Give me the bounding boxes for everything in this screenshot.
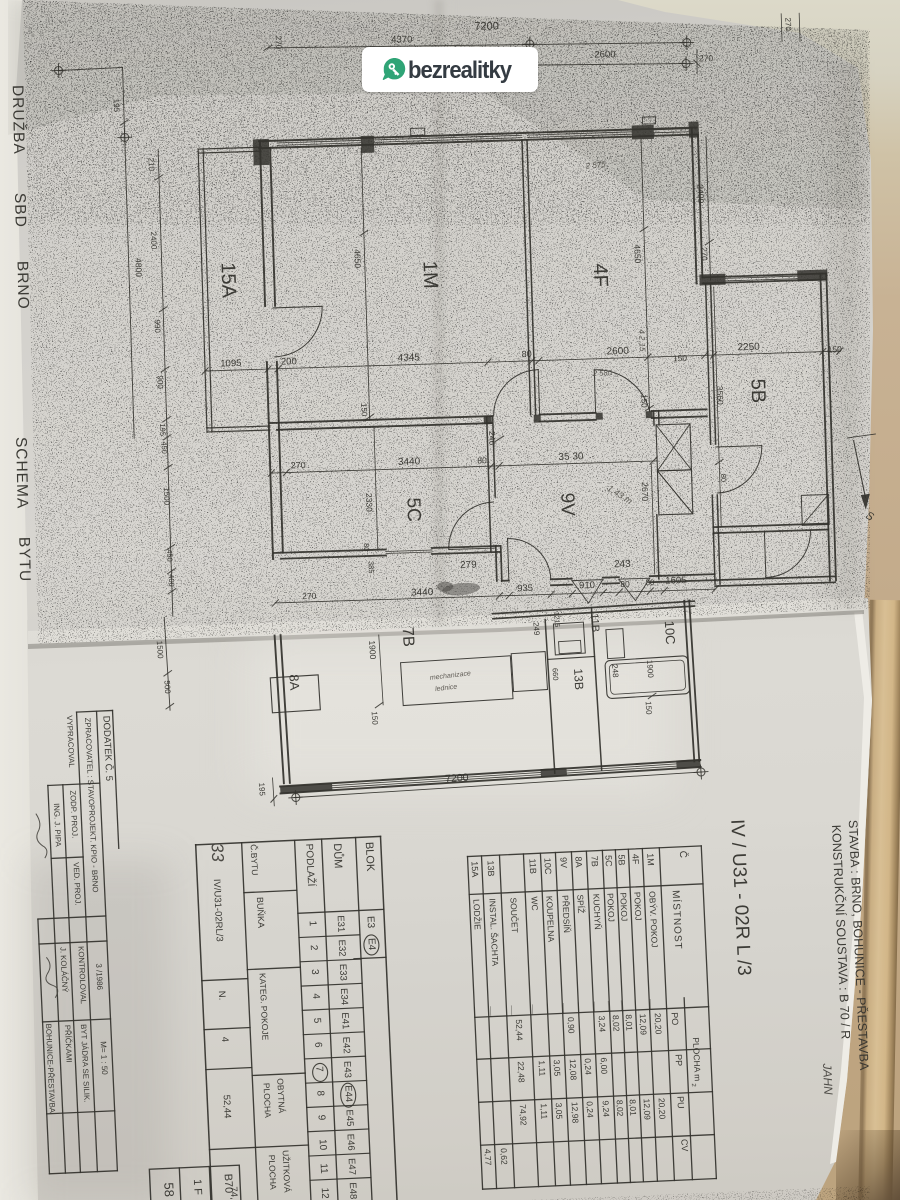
svg-text:MÍSTNOST: MÍSTNOST <box>670 890 686 950</box>
svg-text:2330: 2330 <box>364 493 375 512</box>
svg-text:52,44: 52,44 <box>221 1094 233 1118</box>
svg-text:1M: 1M <box>419 261 442 289</box>
svg-text:385: 385 <box>366 561 375 574</box>
svg-text:4: 4 <box>310 993 321 999</box>
svg-text:IV/U31-02RL/3: IV/U31-02RL/3 <box>211 879 225 942</box>
svg-text:270: 270 <box>302 591 317 601</box>
svg-text:11: 11 <box>318 1163 329 1174</box>
svg-text:SPÍŽ: SPÍŽ <box>575 894 586 913</box>
svg-text:20,20: 20,20 <box>657 1098 668 1120</box>
svg-text:195: 195 <box>112 99 121 113</box>
svg-text:1,43 m: 1,43 m <box>606 483 635 507</box>
svg-text:210: 210 <box>146 157 155 171</box>
svg-text:13B: 13B <box>485 860 496 876</box>
svg-text:E42: E42 <box>340 1036 352 1053</box>
svg-text:E41: E41 <box>339 1012 351 1029</box>
svg-text:N.: N. <box>216 991 227 1001</box>
svg-text:KONTROLOVAL: KONTROLOVAL <box>76 946 88 1005</box>
svg-text:PŘEDSÍŇ: PŘEDSÍŇ <box>560 895 572 933</box>
svg-text:150: 150 <box>639 394 648 408</box>
svg-text:12,98: 12,98 <box>570 1102 581 1124</box>
svg-text:E33: E33 <box>337 964 349 981</box>
svg-text:35 30: 35 30 <box>558 451 584 463</box>
svg-text:OBÝV. POKOJ: OBÝV. POKOJ <box>647 891 660 948</box>
svg-text:80: 80 <box>719 474 728 483</box>
svg-text:E48: E48 <box>347 1182 359 1199</box>
svg-text:3440: 3440 <box>411 587 434 599</box>
svg-text:270: 270 <box>274 36 283 50</box>
svg-text:5: 5 <box>311 1017 322 1023</box>
svg-text:1500: 1500 <box>155 640 165 659</box>
svg-text:2: 2 <box>690 1083 696 1087</box>
svg-text:PLOCHA m: PLOCHA m <box>691 1037 703 1081</box>
svg-text:400: 400 <box>167 574 176 587</box>
svg-text:PO: PO <box>670 1012 681 1025</box>
svg-text:0,24: 0,24 <box>583 1058 594 1075</box>
svg-text:450: 450 <box>160 441 169 454</box>
svg-text:BYT JÁDRA SE SILIK.: BYT JÁDRA SE SILIK. <box>79 1024 92 1103</box>
svg-text:OBYTNÁ: OBYTNÁ <box>275 1078 287 1114</box>
svg-text:2400: 2400 <box>695 184 706 203</box>
svg-text:UŽITKOVÁ: UŽITKOVÁ <box>281 1150 293 1193</box>
svg-text:8: 8 <box>314 1090 325 1096</box>
svg-text:PU: PU <box>675 1096 686 1109</box>
svg-text:4 2,15: 4 2,15 <box>637 329 647 352</box>
svg-text:150: 150 <box>644 701 654 715</box>
svg-text:243: 243 <box>614 559 631 571</box>
svg-text:ZODP. PROJ.: ZODP. PROJ. <box>68 790 79 838</box>
svg-text:2: 2 <box>308 945 319 951</box>
svg-text:E31: E31 <box>335 915 347 932</box>
svg-text:6: 6 <box>312 1042 323 1048</box>
svg-text:IV / U31 - 02R L /3: IV / U31 - 02R L /3 <box>726 819 754 976</box>
svg-text:M= 1 : 50: M= 1 : 50 <box>99 1041 110 1075</box>
svg-text:2600: 2600 <box>606 346 629 358</box>
svg-text:1,11: 1,11 <box>537 1060 548 1077</box>
svg-text:KOUPELNA: KOUPELNA <box>544 896 556 943</box>
svg-text:0,62: 0,62 <box>499 1148 510 1165</box>
svg-text:PLOCHA: PLOCHA <box>262 1083 274 1119</box>
svg-text:4345: 4345 <box>398 352 421 364</box>
svg-text:4650: 4650 <box>632 244 643 263</box>
svg-text:1900: 1900 <box>645 660 655 679</box>
svg-text:15A: 15A <box>469 861 480 877</box>
svg-text:248: 248 <box>610 664 620 678</box>
svg-text:5C: 5C <box>402 497 424 522</box>
svg-text:4,77: 4,77 <box>483 1149 494 1166</box>
svg-text:279: 279 <box>460 560 477 572</box>
svg-text:80: 80 <box>362 543 371 552</box>
svg-text:270: 270 <box>700 247 709 261</box>
svg-text:PŘÍČKAMI: PŘÍČKAMI <box>63 1025 74 1063</box>
svg-text:DŮM: DŮM <box>331 843 345 869</box>
svg-text:52,44: 52,44 <box>514 1019 525 1041</box>
svg-text:15A: 15A <box>217 262 240 299</box>
svg-text:POKOJ: POKOJ <box>605 893 616 922</box>
svg-text:0,90: 0,90 <box>566 1017 577 1034</box>
svg-text:2250: 2250 <box>737 342 760 354</box>
svg-text:1095: 1095 <box>220 358 241 370</box>
svg-text:E34: E34 <box>338 988 350 1005</box>
svg-text:450: 450 <box>165 549 174 562</box>
svg-text:4800: 4800 <box>133 258 144 277</box>
svg-text:0,24: 0,24 <box>585 1101 596 1118</box>
svg-text:E44: E44 <box>342 1085 354 1102</box>
svg-text:9V: 9V <box>558 857 568 868</box>
svg-text:5B: 5B <box>616 854 626 865</box>
svg-text:9V: 9V <box>556 492 578 516</box>
svg-text:J. KOLÁČNÝ: J. KOLÁČNÝ <box>58 947 69 994</box>
svg-text:10: 10 <box>317 1139 329 1151</box>
svg-text:12,09: 12,09 <box>642 1098 653 1120</box>
svg-text:3440: 3440 <box>398 456 421 468</box>
svg-text:1900: 1900 <box>367 640 378 660</box>
svg-text:7: 7 <box>313 1066 324 1072</box>
svg-text:150: 150 <box>827 344 842 354</box>
svg-text:PLOCHA: PLOCHA <box>267 1154 279 1190</box>
svg-text:22,48: 22,48 <box>516 1061 527 1083</box>
svg-text:7200: 7200 <box>445 772 469 785</box>
svg-text:lednice: lednice <box>435 684 458 694</box>
svg-text:80: 80 <box>620 579 630 589</box>
svg-text:4650: 4650 <box>352 249 363 268</box>
svg-text:1605: 1605 <box>665 575 686 587</box>
svg-text:S: S <box>863 510 876 524</box>
svg-text:270: 270 <box>783 17 792 31</box>
svg-text:PP: PP <box>673 1054 684 1066</box>
svg-text:195: 195 <box>158 423 167 436</box>
svg-text:5C: 5C <box>603 855 614 867</box>
svg-text:WC: WC <box>529 896 540 911</box>
svg-text:270: 270 <box>699 53 714 63</box>
svg-text:SCHEMA: SCHEMA <box>12 437 31 510</box>
svg-text:270: 270 <box>290 460 305 470</box>
svg-text:12,09: 12,09 <box>638 1013 649 1035</box>
svg-text:VED. PROJ.: VED. PROJ. <box>72 862 83 906</box>
svg-text:POKOJ: POKOJ <box>618 892 629 921</box>
svg-text:10C: 10C <box>662 620 678 645</box>
svg-text:B70: B70 <box>222 1173 235 1193</box>
svg-text:80: 80 <box>645 578 655 587</box>
svg-text:3: 3 <box>309 969 320 975</box>
svg-text:6,00: 6,00 <box>599 1057 610 1074</box>
svg-text:3,05: 3,05 <box>554 1102 565 1119</box>
svg-text:BUŇKA: BUŇKA <box>255 897 266 928</box>
svg-text:8A: 8A <box>286 674 302 691</box>
svg-text:12,08: 12,08 <box>568 1059 579 1081</box>
svg-text:500: 500 <box>162 680 172 694</box>
svg-text:33: 33 <box>208 842 228 862</box>
svg-text:4: 4 <box>219 1036 230 1042</box>
svg-text:BRNO: BRNO <box>13 261 31 310</box>
svg-text:DRUŽBA: DRUŽBA <box>9 85 27 155</box>
svg-text:990: 990 <box>153 319 162 333</box>
svg-text:2670: 2670 <box>640 482 651 501</box>
svg-text:Č.BYTU: Č.BYTU <box>249 844 260 876</box>
svg-text:4370: 4370 <box>391 34 412 45</box>
svg-text:8A: 8A <box>573 856 583 867</box>
svg-text:150: 150 <box>673 353 688 363</box>
svg-text:246: 246 <box>487 431 497 446</box>
svg-text:4F: 4F <box>589 263 612 287</box>
svg-text:80: 80 <box>477 455 487 465</box>
svg-text:E45: E45 <box>343 1109 355 1126</box>
svg-text:74,92: 74,92 <box>518 1104 529 1126</box>
svg-text:2 575: 2 575 <box>584 160 606 171</box>
svg-text:1M: 1M <box>645 853 656 866</box>
svg-text:150: 150 <box>359 403 368 417</box>
svg-text:2400: 2400 <box>149 231 159 250</box>
svg-text:ING. J. PIPA: ING. J. PIPA <box>52 803 63 848</box>
svg-text:KATEG. POKOJE: KATEG. POKOJE <box>258 973 271 1041</box>
svg-text:200: 200 <box>281 356 297 367</box>
svg-text:11B: 11B <box>588 613 601 632</box>
svg-text:INSTAL. ŠACHTA: INSTAL. ŠACHTA <box>487 898 500 966</box>
svg-text:9: 9 <box>315 1115 326 1121</box>
svg-text:9,24: 9,24 <box>601 1100 612 1117</box>
svg-text:910: 910 <box>579 580 595 591</box>
svg-text:POKOJ: POKOJ <box>632 892 643 921</box>
svg-text:BLOK: BLOK <box>363 842 376 873</box>
svg-text:BYTU: BYTU <box>15 537 33 583</box>
svg-text:7B: 7B <box>399 627 417 648</box>
svg-text:JAHN: JAHN <box>820 1062 835 1095</box>
svg-text:900: 900 <box>155 375 164 389</box>
svg-text:7B: 7B <box>589 856 599 867</box>
svg-text:58: 58 <box>161 1182 177 1197</box>
svg-text:4F: 4F <box>630 854 640 865</box>
svg-text:DODATEK Č. 5: DODATEK Č. 5 <box>100 716 114 782</box>
svg-text:7200: 7200 <box>474 20 499 32</box>
svg-text:195: 195 <box>257 782 267 796</box>
svg-text:KUCHYŇ: KUCHYŇ <box>591 893 603 929</box>
svg-text:1215: 1215 <box>552 612 560 628</box>
svg-text:80: 80 <box>522 349 532 359</box>
svg-text:8,02: 8,02 <box>615 1100 626 1117</box>
svg-text:10C: 10C <box>542 858 553 875</box>
svg-text:1 F: 1 F <box>191 1179 204 1196</box>
svg-text:20,20: 20,20 <box>653 1013 664 1035</box>
svg-text:11B: 11B <box>527 858 538 874</box>
svg-text:8,01: 8,01 <box>628 1099 639 1116</box>
svg-text:E47: E47 <box>346 1158 358 1175</box>
svg-text:mechanizace: mechanizace <box>430 670 472 682</box>
svg-text:Č: Č <box>677 850 690 858</box>
svg-text:8,01: 8,01 <box>624 1014 635 1031</box>
svg-text:SOUČET: SOUČET <box>508 897 520 933</box>
svg-text:3 /1986: 3 /1986 <box>94 963 104 991</box>
svg-text:3,24: 3,24 <box>597 1015 608 1032</box>
svg-text:E3: E3 <box>365 916 377 929</box>
svg-text:150: 150 <box>370 711 380 725</box>
svg-text:CV: CV <box>679 1139 690 1152</box>
svg-text:3,05: 3,05 <box>552 1059 563 1076</box>
svg-text:1500: 1500 <box>162 487 172 506</box>
svg-text:E32: E32 <box>336 939 348 956</box>
svg-text:VYPRACOVAL: VYPRACOVAL <box>65 715 76 768</box>
svg-text:1,11: 1,11 <box>539 1103 550 1120</box>
svg-text:E46: E46 <box>345 1134 357 1151</box>
svg-text:E43: E43 <box>341 1061 353 1078</box>
svg-text:935: 935 <box>517 583 533 594</box>
svg-text:660: 660 <box>550 668 560 681</box>
svg-text:249: 249 <box>531 622 541 636</box>
svg-text:PODLAŽÍ: PODLAŽÍ <box>303 843 318 887</box>
svg-text:5B: 5B <box>746 378 769 403</box>
svg-text:3560: 3560 <box>715 386 726 405</box>
svg-text:2 580: 2 580 <box>592 368 613 378</box>
svg-text:8,02: 8,02 <box>611 1015 622 1032</box>
svg-text:13B: 13B <box>571 668 586 690</box>
svg-text:2600: 2600 <box>594 49 615 60</box>
svg-text:LODŽIE: LODŽIE <box>471 899 482 930</box>
svg-text:E4: E4 <box>366 938 378 951</box>
svg-text:SBD: SBD <box>11 193 29 228</box>
svg-text:1: 1 <box>307 920 318 926</box>
svg-text:12: 12 <box>319 1187 331 1199</box>
